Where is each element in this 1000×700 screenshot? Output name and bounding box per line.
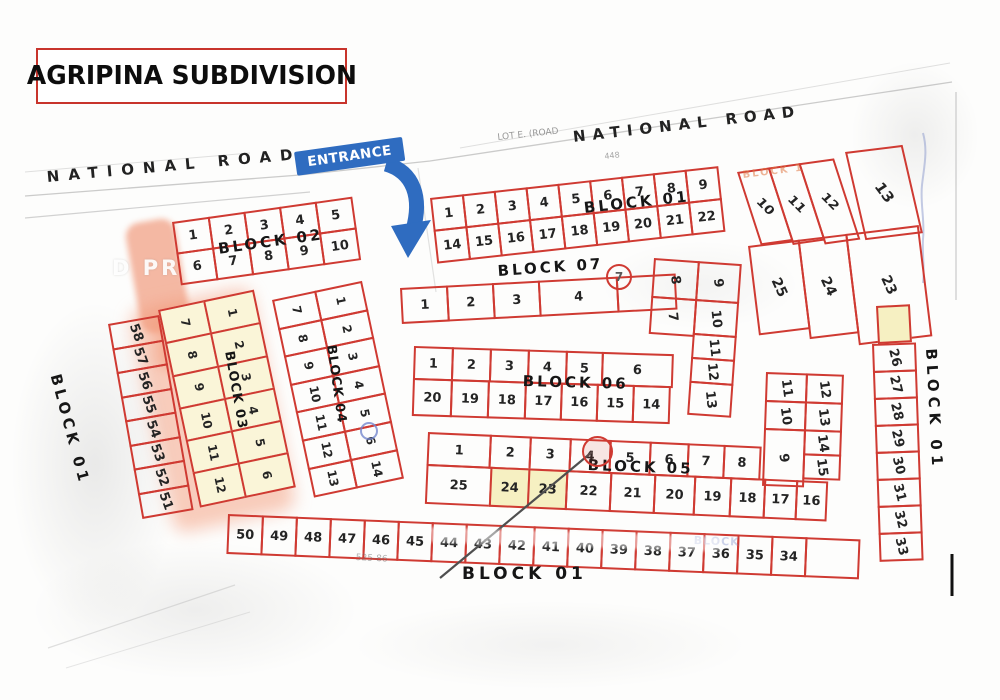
lot-cell-empty bbox=[804, 537, 861, 579]
scan-smudge bbox=[30, 540, 360, 680]
lot-block05-ne-group-9: 9 bbox=[762, 428, 806, 487]
lot-number: 1 bbox=[224, 307, 239, 318]
lot-number: 8 bbox=[668, 274, 684, 285]
lot-block05-grid-23: 23 bbox=[527, 468, 569, 510]
lot-number: 11 bbox=[312, 413, 329, 432]
lot-number: 41 bbox=[542, 539, 561, 555]
lot-block01-south-row-38: 38 bbox=[634, 530, 672, 571]
lot-block05-grid-20: 20 bbox=[653, 474, 697, 516]
lot-number: 1 bbox=[429, 356, 439, 371]
lot-block07-row-3: 3 bbox=[492, 281, 542, 319]
lot-number: 50 bbox=[236, 527, 255, 543]
lot-number: 2 bbox=[505, 445, 515, 460]
lot-number: 3 bbox=[512, 292, 522, 307]
lot-number: 4 bbox=[351, 379, 366, 390]
lot-number: 12 bbox=[816, 379, 833, 399]
lot-number: 38 bbox=[644, 543, 663, 559]
lot-block01-east-strip-27: 27 bbox=[873, 369, 918, 400]
lot-number: 12 bbox=[817, 190, 841, 213]
lot-number: 16 bbox=[570, 394, 589, 410]
lot-number: 31 bbox=[890, 482, 909, 503]
lot-number: 36 bbox=[711, 546, 730, 562]
lot-number: 1 bbox=[420, 297, 430, 312]
lot-number: 15 bbox=[606, 396, 625, 412]
national-road-label-left: NATIONAL ROAD bbox=[46, 145, 302, 186]
lot-number: 34 bbox=[779, 549, 798, 565]
lot-block05-grid-1: 1 bbox=[427, 432, 492, 469]
lot-number: 6 bbox=[259, 470, 274, 481]
lot-number: 5 bbox=[330, 208, 341, 224]
lot-block05-grid-19: 19 bbox=[693, 476, 733, 518]
lot-number: 1 bbox=[333, 295, 348, 306]
lot-block01-east-strip-29: 29 bbox=[875, 423, 920, 454]
block06-label: BLOCK 06 bbox=[523, 372, 629, 393]
entrance-arrow-shaft bbox=[386, 164, 417, 230]
lot-number: 58 bbox=[126, 321, 146, 343]
lot-number: 6 bbox=[633, 362, 643, 377]
lot-number: 3 bbox=[345, 351, 360, 362]
lot-cell-empty bbox=[876, 304, 912, 344]
lot-block01-east-strip-28: 28 bbox=[874, 396, 919, 427]
lot-number: 56 bbox=[134, 370, 154, 392]
lot-block06-grid-20: 20 bbox=[412, 378, 453, 417]
lot-number: 8 bbox=[184, 349, 199, 360]
lot-number: 32 bbox=[891, 509, 910, 530]
lot-block05-grid-25: 25 bbox=[425, 464, 493, 507]
lot-number: 4 bbox=[295, 213, 306, 229]
lot-number: 12 bbox=[211, 475, 228, 494]
lot-number: 19 bbox=[601, 219, 621, 236]
lot-block06-ne-group-13: 13 bbox=[687, 381, 733, 418]
lot-number: 7 bbox=[289, 305, 304, 316]
lot-number: 53 bbox=[147, 442, 167, 464]
lot-block07-row-1: 1 bbox=[400, 285, 450, 323]
lot-number: 21 bbox=[623, 485, 642, 501]
lot-number: 35 bbox=[745, 547, 764, 563]
lot-number: 7 bbox=[665, 311, 681, 322]
lot-number: 14 bbox=[368, 459, 385, 478]
lot-number: 24 bbox=[817, 274, 840, 298]
lot-number: 13 bbox=[815, 407, 832, 427]
lot-block01-east-strip-33: 33 bbox=[879, 531, 924, 562]
lot-block01-south-row-40: 40 bbox=[566, 528, 604, 569]
lot-number: 9 bbox=[301, 361, 316, 372]
lot-number: 9 bbox=[711, 277, 727, 288]
lot-block05-ne-group-13: 13 bbox=[804, 401, 843, 432]
lot-block01-east-strip-32: 32 bbox=[878, 504, 923, 535]
lot-number: 48 bbox=[304, 530, 323, 546]
lot-number: 4 bbox=[245, 404, 260, 415]
lot-block07-row-2: 2 bbox=[446, 283, 496, 321]
lot-number: 27 bbox=[886, 374, 905, 395]
lot-block01-east-strip-26: 26 bbox=[872, 342, 917, 373]
lot-number: 57 bbox=[130, 346, 150, 368]
lot-block01-south-row-34: 34 bbox=[770, 536, 808, 577]
lot-number: 13 bbox=[870, 179, 898, 206]
lot-number: 16 bbox=[802, 493, 821, 509]
lot-number: 8 bbox=[295, 333, 310, 344]
lot-number: 24 bbox=[500, 480, 519, 496]
lot-number: 30 bbox=[889, 455, 908, 476]
lot-number: 49 bbox=[270, 528, 289, 544]
map-title: AGRIPINA SUBDIVISION bbox=[26, 61, 356, 91]
block04-blue-mark bbox=[360, 422, 378, 440]
lot-number: 39 bbox=[610, 542, 629, 558]
lot-number: 22 bbox=[579, 483, 598, 499]
lot-block01-east-strip-31: 31 bbox=[877, 477, 922, 508]
lot-number: 9 bbox=[698, 177, 709, 193]
lot-number: 43 bbox=[474, 536, 493, 552]
lot-number: 33 bbox=[892, 536, 911, 557]
lot-number: 51 bbox=[156, 490, 176, 512]
lot-number: 2 bbox=[231, 339, 246, 350]
lot-number: 10 bbox=[777, 406, 794, 426]
lot-number: 17 bbox=[534, 393, 553, 409]
lot-number: 18 bbox=[498, 392, 517, 408]
lot-block05-grid-21: 21 bbox=[609, 472, 657, 514]
block05-lot4-circle bbox=[582, 436, 613, 467]
lot-number: 5 bbox=[252, 437, 267, 448]
lot-block05-grid-24: 24 bbox=[489, 467, 531, 509]
lot-block05-ne-group-11: 11 bbox=[765, 372, 808, 403]
lot-block06-ne-group-7: 7 bbox=[649, 296, 698, 337]
lot-number: 13 bbox=[702, 389, 719, 409]
block06-ne-group: 87910111213 bbox=[643, 258, 742, 418]
national-road-label-right: NATIONAL ROAD bbox=[572, 102, 802, 146]
lot-number: 5 bbox=[357, 407, 372, 418]
lot-number: 20 bbox=[633, 215, 653, 232]
lot-number: 20 bbox=[665, 487, 684, 503]
lot-number: 11 bbox=[778, 378, 795, 398]
lot-block01-south-row-41: 41 bbox=[532, 526, 570, 567]
subdivision-map: AGRIPINA SUBDIVISION NATIONAL ROAD NATIO… bbox=[0, 0, 1000, 700]
lot-number: 18 bbox=[738, 490, 757, 506]
lot-block05-grid-3: 3 bbox=[528, 436, 571, 472]
lot-number: 3 bbox=[259, 218, 270, 234]
lot-number: 55 bbox=[139, 394, 159, 416]
block07-circled-seven: 7 bbox=[606, 264, 632, 290]
lot-number: 15 bbox=[813, 457, 830, 477]
lot-number: 6 bbox=[192, 258, 203, 274]
lot-block06-ne-group-10: 10 bbox=[693, 299, 739, 338]
lot-block01-south-row-44: 44 bbox=[430, 522, 468, 563]
lot-number: 23 bbox=[877, 273, 900, 297]
lot-block05-ne-group-10: 10 bbox=[764, 400, 807, 431]
lot-number: 45 bbox=[406, 534, 425, 550]
lot-number: 28 bbox=[887, 401, 906, 422]
block01-south-label: BLOCK 01 bbox=[462, 564, 587, 584]
lot-number: 25 bbox=[768, 275, 791, 299]
ghost-text-blue: BLOCK bbox=[694, 534, 740, 549]
lot-number: 1 bbox=[454, 443, 464, 458]
lot-number: 10 bbox=[306, 385, 323, 404]
block07-row: 1234 bbox=[400, 274, 678, 324]
lot-number: 23 bbox=[538, 481, 557, 497]
lot-block01-south-row-39: 39 bbox=[600, 529, 638, 570]
lot-number: 1 bbox=[188, 228, 199, 244]
lot-number: 26 bbox=[885, 347, 904, 368]
scan-smudge bbox=[350, 600, 750, 690]
lot-block01-south-row-45: 45 bbox=[396, 521, 434, 562]
lot-number: 42 bbox=[508, 538, 527, 554]
circled-seven-number: 7 bbox=[615, 270, 623, 284]
block05-ne-group: 1110912131415 bbox=[762, 372, 844, 489]
lot-number: 2 bbox=[223, 223, 234, 239]
lot-number: 2 bbox=[467, 357, 477, 372]
block07-label: BLOCK 07 bbox=[497, 255, 604, 280]
lot-number: 2 bbox=[466, 295, 476, 310]
lot-number: 22 bbox=[697, 208, 717, 225]
lot-number: 11 bbox=[706, 338, 723, 358]
lot-number: 46 bbox=[372, 532, 391, 548]
lot-number: 52 bbox=[151, 466, 171, 488]
lot-number: 10 bbox=[708, 309, 725, 329]
lot-number: 9 bbox=[191, 382, 206, 393]
lot-block05-grid-8: 8 bbox=[722, 445, 761, 481]
lot-number: 16 bbox=[506, 229, 526, 246]
lot-number: 19 bbox=[703, 489, 722, 505]
lot-block06-grid-2: 2 bbox=[451, 347, 492, 382]
lot-number: 2 bbox=[475, 202, 486, 218]
block01-east-strip: 2627282930313233 bbox=[872, 342, 924, 561]
block01-west-label: BLOCK 01 bbox=[47, 372, 94, 487]
lot-number: 54 bbox=[143, 418, 163, 440]
lot-block01-south-row-48: 48 bbox=[294, 517, 332, 558]
lot-number: 20 bbox=[423, 390, 442, 406]
watermark-fragment: D PR bbox=[112, 256, 180, 280]
lot-number: 2 bbox=[339, 323, 354, 334]
title-box: AGRIPINA SUBDIVISION bbox=[36, 48, 347, 104]
lot-number: 7 bbox=[701, 453, 711, 468]
lot-block01-east-strip-30: 30 bbox=[876, 450, 921, 481]
lot-block06-grid-19: 19 bbox=[450, 379, 490, 418]
lot-number: 25 bbox=[449, 478, 468, 494]
lot-number: 3 bbox=[507, 198, 518, 214]
lot-number: 3 bbox=[505, 358, 515, 373]
scan-fragment-lot-e: LOT E. (ROAD bbox=[497, 127, 559, 143]
lot-number: 8 bbox=[737, 455, 747, 470]
lot-number: 12 bbox=[704, 362, 721, 382]
lot-number: 13 bbox=[324, 468, 341, 487]
lot-number: 17 bbox=[771, 492, 790, 508]
lot-number: 47 bbox=[338, 531, 357, 547]
entrance-arrow-head bbox=[391, 220, 431, 258]
lot-block05-ne-group-15: 15 bbox=[802, 453, 841, 480]
lot-block02-grid-10: 10 bbox=[319, 227, 361, 265]
lot-number: 3 bbox=[545, 447, 555, 462]
scan-fragment-448: 448 bbox=[604, 150, 620, 161]
lot-number: 4 bbox=[539, 195, 550, 211]
lot-number: 11 bbox=[204, 443, 221, 462]
lot-number: 21 bbox=[665, 212, 685, 229]
lot-number: 7 bbox=[177, 317, 192, 328]
lot-number: 11 bbox=[784, 193, 808, 216]
lot-number: 10 bbox=[197, 410, 214, 429]
lot-block05-ne-group-12: 12 bbox=[805, 373, 844, 404]
lot-block05-grid-18: 18 bbox=[729, 477, 767, 519]
lot-block06-grid-1: 1 bbox=[413, 346, 454, 381]
lot-number: 10 bbox=[753, 195, 777, 218]
lot-number: 10 bbox=[330, 238, 350, 255]
lot-number: 18 bbox=[570, 222, 590, 239]
lot-number: 19 bbox=[461, 391, 480, 407]
lot-block01-south-row-49: 49 bbox=[260, 515, 298, 556]
lot-number: 44 bbox=[440, 535, 459, 551]
lot-block05-grid-22: 22 bbox=[565, 470, 613, 512]
lot-number: 4 bbox=[574, 289, 584, 304]
lot-block01-south-row-42: 42 bbox=[498, 525, 536, 566]
lot-block01-south-row-50: 50 bbox=[226, 514, 264, 555]
lot-number: 17 bbox=[538, 226, 558, 243]
lot-number: 12 bbox=[318, 441, 335, 460]
entrance-banner: ENTRANCE bbox=[294, 137, 405, 176]
block01-east-label: BLOCK 01 bbox=[922, 348, 946, 471]
lot-number: 29 bbox=[888, 428, 907, 449]
scan-fragment-bottom: 525-86 bbox=[355, 553, 387, 565]
lot-block01-south-row-43: 43 bbox=[464, 524, 502, 565]
lot-block01-top-grid-22: 22 bbox=[688, 198, 726, 236]
lot-number: 1 bbox=[443, 205, 454, 221]
yellow-cell bbox=[876, 304, 912, 344]
lot-number: 40 bbox=[576, 540, 595, 556]
lot-number: 15 bbox=[474, 233, 494, 250]
lot-block06-grid-18: 18 bbox=[487, 380, 527, 419]
lot-number: 14 bbox=[442, 236, 462, 253]
lot-number: 9 bbox=[776, 452, 792, 463]
lot-block06-ne-group-9: 9 bbox=[695, 261, 742, 304]
block01-top-grid: 123456789141516171819202122 bbox=[430, 166, 725, 263]
lot-number: 14 bbox=[814, 433, 831, 453]
lot-block06-ne-group-8: 8 bbox=[651, 258, 700, 301]
lot-block01-south-row-35: 35 bbox=[736, 534, 774, 575]
lot-number: 5 bbox=[571, 191, 582, 207]
lot-block05-grid-2: 2 bbox=[488, 435, 531, 471]
